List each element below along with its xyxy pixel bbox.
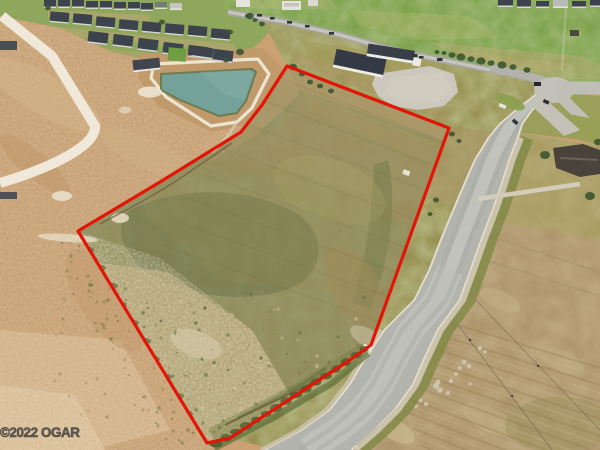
svg-text:©2022 OGAR: ©2022 OGAR [0,425,80,440]
